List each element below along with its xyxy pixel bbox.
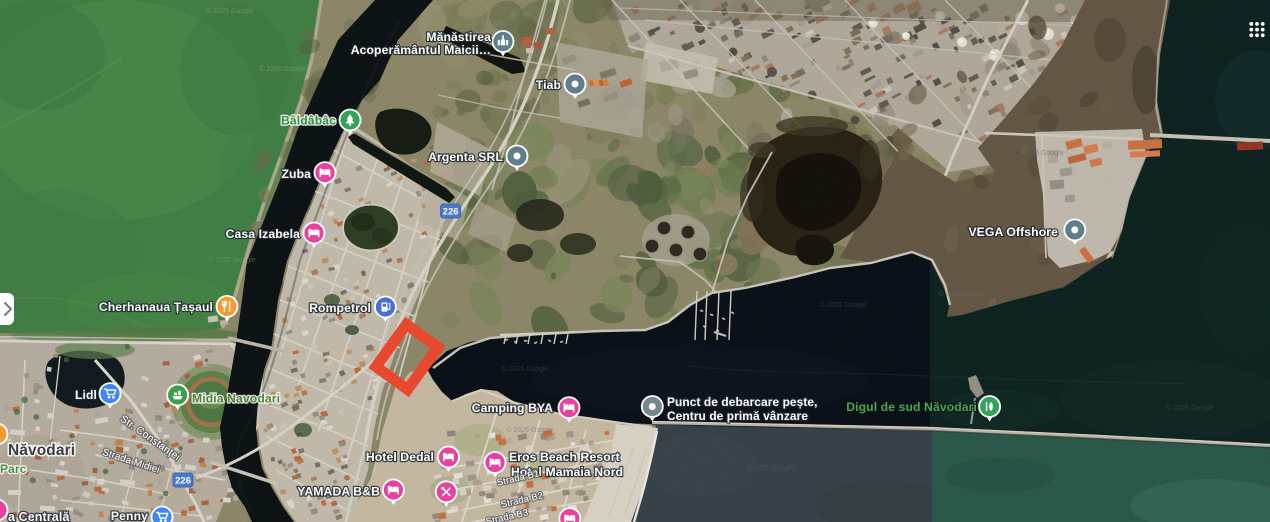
svg-text:Eros Beach Resort: Eros Beach Resort [509,450,620,464]
svg-text:a Centrală: a Centrală [8,510,70,522]
svg-text:Mănăstirea: Mănăstirea [426,30,491,44]
svg-text:Cherhanaua Țașaul: Cherhanaua Țașaul [99,300,213,314]
svg-text:© 2025 Google: © 2025 Google [456,19,503,27]
svg-text:226: 226 [443,207,459,218]
svg-text:Argenta SRL: Argenta SRL [428,150,503,164]
svg-text:VEGA Offshore: VEGA Offshore [968,225,1058,239]
svg-text:© 2025 Google: © 2025 Google [208,256,255,264]
svg-text:Casa Izabela: Casa Izabela [226,227,300,241]
svg-text:© 2025 Google: © 2025 Google [819,301,866,309]
svg-text:Punct de debarcare pește,: Punct de debarcare pește, [667,395,818,409]
svg-text:© 2025 Google: © 2025 Google [1166,404,1213,412]
svg-text:Midia Navodari: Midia Navodari [192,392,280,406]
svg-text:Acoperământul Maicii…: Acoperământul Maicii… [351,43,491,57]
svg-text:Lidl: Lidl [75,388,97,402]
svg-text:© 2025 Google: © 2025 Google [1016,149,1063,157]
svg-text:© 2025 Google: © 2025 Google [938,290,985,298]
svg-text:Tiab: Tiab [536,78,561,92]
svg-text:226: 226 [175,476,191,487]
svg-text:Camping BYA: Camping BYA [472,401,553,415]
svg-text:Parc: Parc [0,462,27,476]
svg-text:Năvodari: Năvodari [8,442,75,459]
svg-text:Bâldâbâc: Bâldâbâc [281,114,336,128]
svg-text:© 2025 Google: © 2025 Google [746,464,793,472]
svg-text:© 2025 Google: © 2025 Google [501,365,548,373]
svg-text:Rompetrol: Rompetrol [309,301,371,315]
svg-text:Centru de primă vânzare: Centru de primă vânzare [667,409,808,423]
svg-text:Penny: Penny [111,509,148,522]
svg-text:© 2025 Google: © 2025 Google [506,426,553,434]
svg-text:Hotel Dedal: Hotel Dedal [366,450,434,464]
svg-text:© 2025 Google: © 2025 Google [206,7,253,15]
svg-text:YAMADA B&B: YAMADA B&B [297,485,380,499]
svg-text:Digul de sud Năvodari: Digul de sud Năvodari [846,400,977,414]
svg-text:© 2025 Google: © 2025 Google [259,65,306,73]
svg-text:Zuba: Zuba [281,167,311,181]
